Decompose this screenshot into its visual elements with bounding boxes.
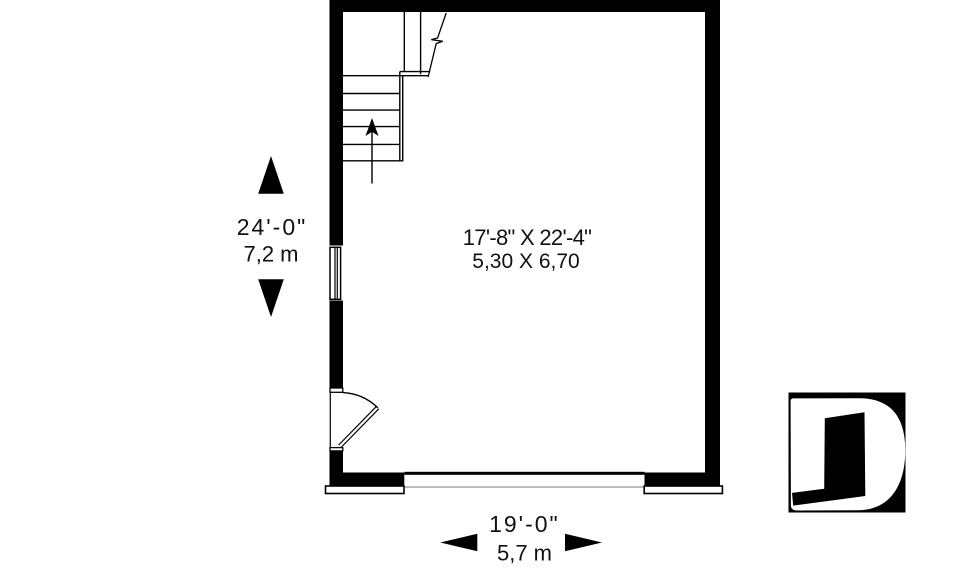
- svg-text:5,30 X 6,70: 5,30 X 6,70: [472, 250, 579, 273]
- svg-text:7,2 m: 7,2 m: [243, 242, 298, 267]
- svg-text:17'-8" X 22'-4": 17'-8" X 22'-4": [463, 225, 591, 250]
- svg-text:24'-0": 24'-0": [237, 214, 308, 240]
- svg-text:19'-0": 19'-0": [489, 511, 560, 537]
- svg-text:5,7 m: 5,7 m: [497, 541, 552, 566]
